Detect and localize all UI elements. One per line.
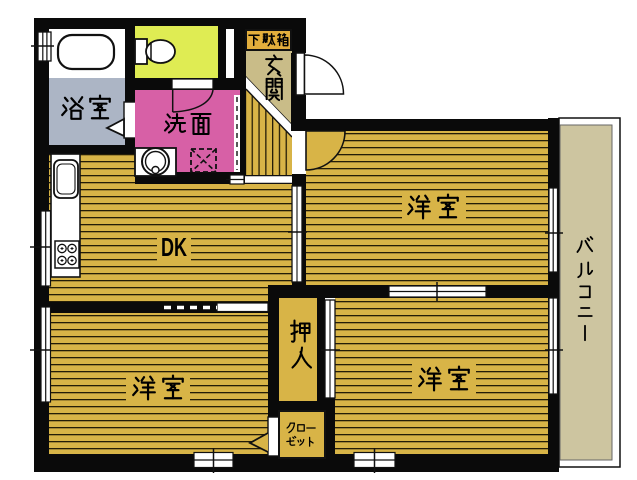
svg-text:DK: DK	[161, 232, 187, 262]
